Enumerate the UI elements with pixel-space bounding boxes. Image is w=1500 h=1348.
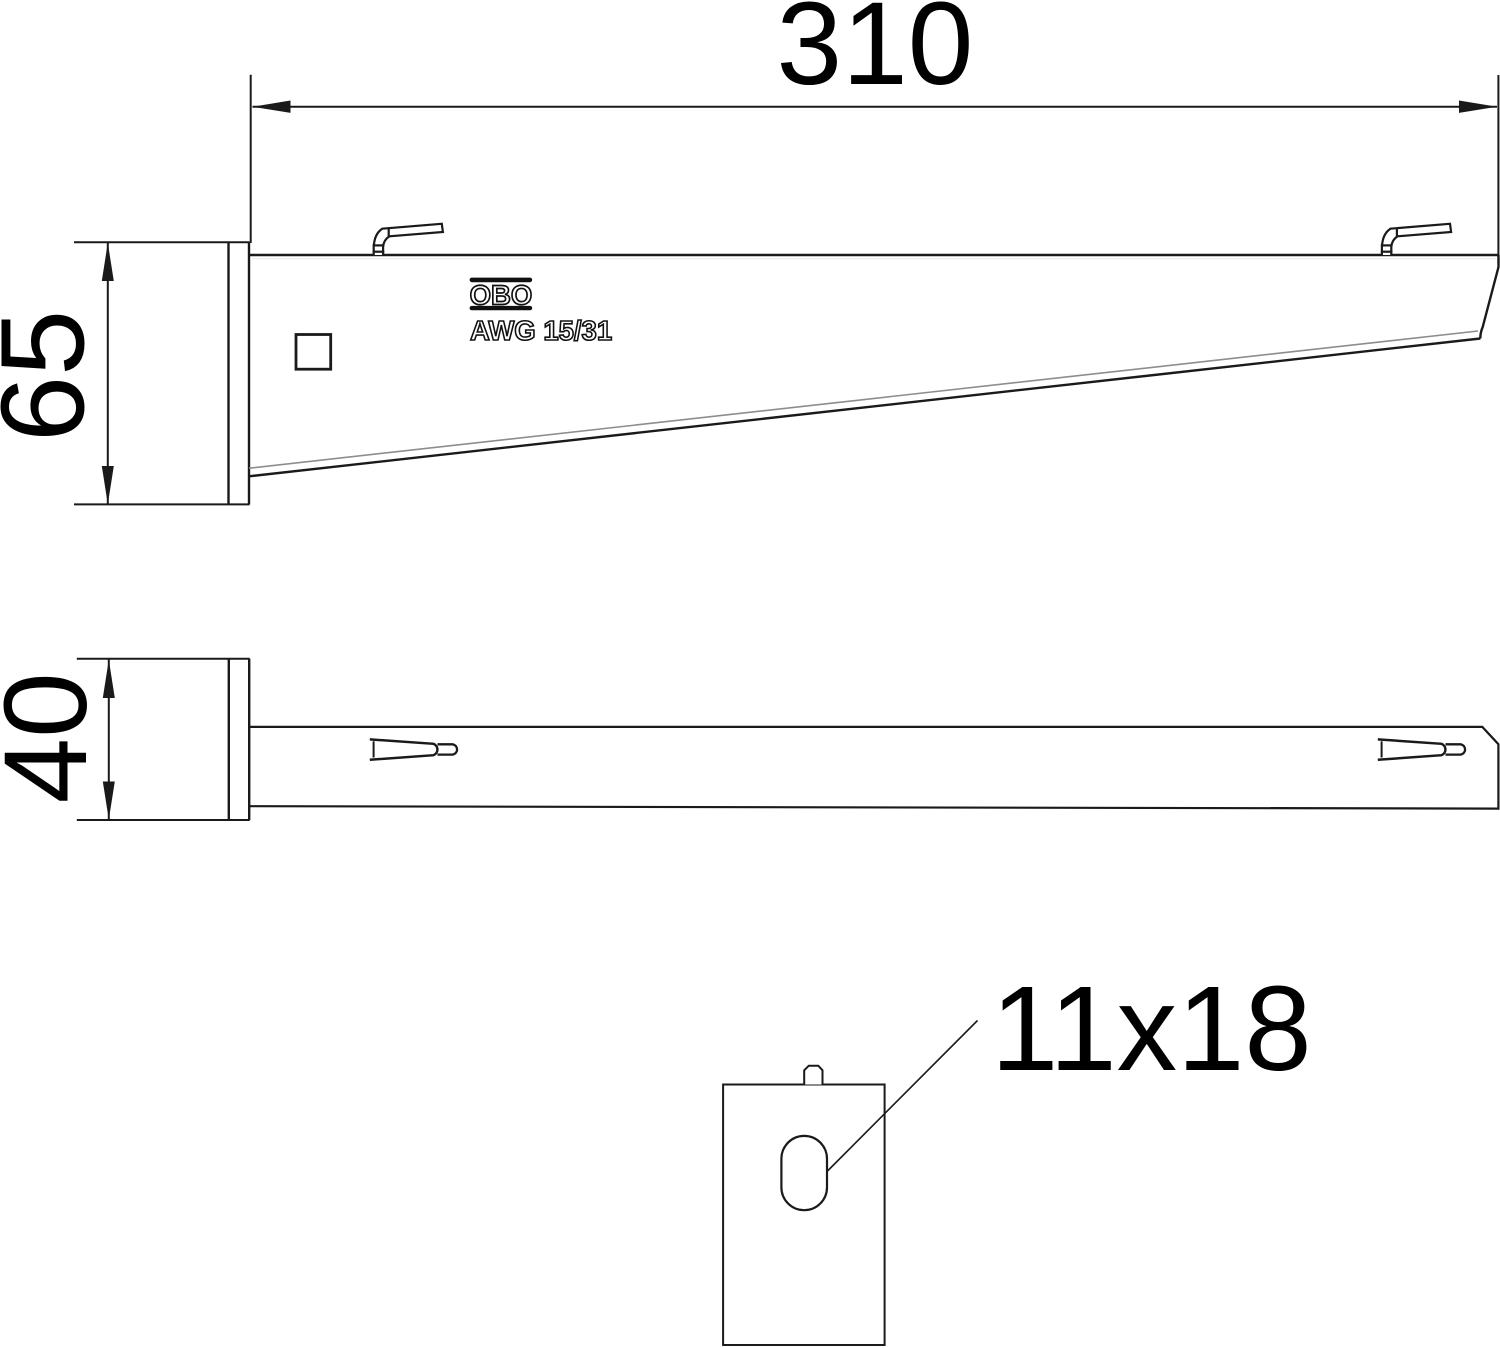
svg-text:40: 40: [0, 672, 112, 803]
svg-text:65: 65: [0, 310, 110, 442]
svg-text:AWG 15/31: AWG 15/31: [470, 315, 612, 346]
svg-text:OBO: OBO: [470, 279, 533, 310]
svg-text:310: 310: [777, 0, 974, 110]
svg-text:11x18: 11x18: [991, 960, 1312, 1096]
